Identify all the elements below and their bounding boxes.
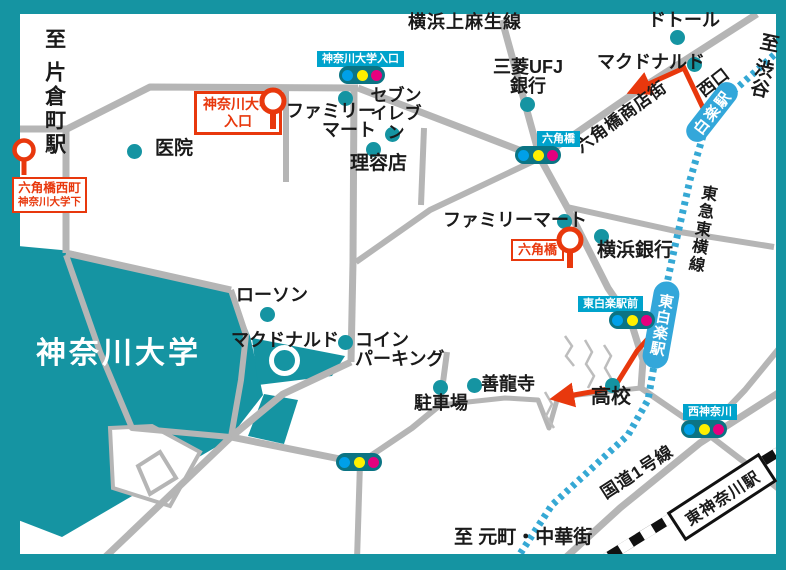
poi-dot-zenryuji	[467, 378, 482, 393]
poi-dot-clinic	[127, 144, 142, 159]
traffic-light-icon	[681, 420, 727, 438]
poi-label-zenryuji: 善龍寺	[481, 375, 535, 394]
signal-yellow-lamp	[533, 150, 544, 161]
poi-dot-mufg-bank	[520, 97, 535, 112]
poi-label-lawson: ローソン	[236, 286, 308, 305]
road-label-yokohama-kamiasao: 横浜上麻生線	[408, 13, 522, 32]
signal-label-rokkakubashi: 六角橋	[537, 131, 580, 147]
poi-label-clinic: 医院	[155, 139, 193, 160]
direction-katakuracho: 至 片倉町駅	[42, 28, 65, 157]
campus-access-map: 神奈川大学 至 片倉町駅 至 渋谷 至 元町・中華街 西口 横浜上麻生線 六角橋…	[0, 0, 786, 570]
traffic-light-icon	[515, 146, 561, 164]
frame-right	[776, 0, 786, 570]
signal-yellow-lamp	[699, 424, 710, 435]
signal-yellow-lamp	[627, 315, 638, 326]
poi-label-seven-eleven: セブン イレブン	[364, 87, 428, 142]
signal-magenta-lamp	[547, 150, 558, 161]
signal-blue-lamp	[518, 150, 529, 161]
traffic-light-icon	[609, 311, 655, 329]
poi-label-mcdonalds-east: マクドナルド	[597, 53, 705, 72]
bus-stop-pin-icon	[11, 137, 37, 177]
signal-label-higashi-hakuraku-ekimae: 東白楽駅前	[578, 296, 643, 312]
signal-yellow-lamp	[354, 457, 365, 468]
campus-title: 神奈川大学	[36, 338, 201, 370]
signal-label-nishi-kanagawa: 西神奈川	[683, 404, 737, 420]
signal-blue-lamp	[684, 424, 695, 435]
frame-bottom	[0, 554, 786, 570]
signal-blue-lamp	[342, 70, 353, 81]
poi-label-mufg-bank: 三菱UFJ 銀行	[478, 58, 578, 97]
bus-stop-box-rokkakubashi-nishimachi: 六角橋西町 神奈川大学下	[12, 177, 87, 213]
poi-label-yokohama-bank: 横浜銀行	[597, 241, 673, 262]
traffic-light-icon	[339, 66, 385, 84]
poi-label-parking-lot: 駐車場	[414, 394, 468, 413]
poi-label-barber: 理容店	[350, 154, 407, 175]
poi-label-coin-parking: コイン パーキング	[355, 331, 444, 370]
signal-magenta-lamp	[713, 424, 724, 435]
signal-blue-lamp	[339, 457, 350, 468]
signal-magenta-lamp	[641, 315, 652, 326]
signal-blue-lamp	[612, 315, 623, 326]
poi-dot-lawson	[260, 307, 275, 322]
poi-label-doutor: ドトール	[648, 11, 720, 30]
signal-yellow-lamp	[357, 70, 368, 81]
poi-dot-doutor	[670, 30, 685, 45]
signal-magenta-lamp	[368, 457, 379, 468]
poi-label-high-school: 高校	[591, 387, 631, 409]
traffic-light-icon	[336, 453, 382, 471]
signal-label-kanagawa-univ-entrance: 神奈川大学入口	[317, 51, 404, 67]
poi-dot-coin-parking	[338, 335, 353, 350]
poi-label-mcdonalds-west: マクドナルド	[231, 331, 339, 350]
bus-stop-pin-icon	[258, 87, 288, 131]
direction-motomachi: 至 元町・中華街	[454, 528, 592, 549]
frame-left	[0, 0, 20, 570]
bus-stop-pin-icon	[555, 226, 585, 270]
signal-magenta-lamp	[371, 70, 382, 81]
